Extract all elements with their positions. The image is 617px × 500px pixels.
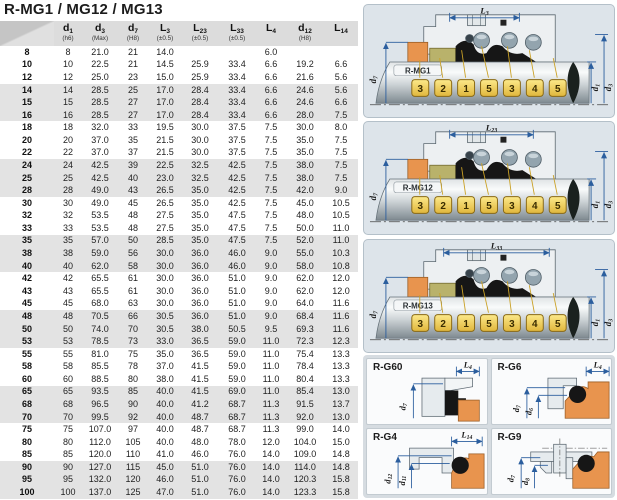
table-row: 303049.04526.535.042.57.545.010.5: [0, 197, 358, 210]
table-cell: 32: [54, 210, 82, 223]
callout-boxes: 3 2 1 5 3 4 5: [412, 197, 566, 214]
table-cell: 60: [54, 373, 82, 386]
table-row: 101022.52114.525.933.46.619.26.6: [0, 59, 358, 72]
table-cell: 30.0: [148, 247, 182, 260]
svg-text:3: 3: [509, 201, 515, 212]
table-cell: 26.5: [148, 184, 182, 197]
table-cell: 75: [54, 423, 82, 436]
table-cell: 38.0: [286, 159, 324, 172]
table-cell: 7.5: [256, 134, 286, 147]
row-label: 20: [0, 134, 54, 147]
table-cell: 48.0: [182, 436, 218, 449]
row-label: 10: [0, 59, 54, 72]
table-cell: 105: [118, 436, 148, 449]
table-cell: 73: [118, 335, 148, 348]
row-label: 80: [0, 436, 54, 449]
table-cell: 12.0: [324, 272, 358, 285]
table-cell: 6.6: [324, 59, 358, 72]
top-dim-label: L3: [479, 5, 489, 16]
table-cell: 48.0: [286, 210, 324, 223]
table-cell: 15.0: [324, 436, 358, 449]
row-label: 43: [0, 285, 54, 298]
table-cell: 70: [118, 323, 148, 336]
table-cell: 35.0: [182, 184, 218, 197]
table-cell: 43: [54, 285, 82, 298]
table-cell: 12.0: [324, 285, 358, 298]
table-cell: 14.0: [256, 474, 286, 487]
seat-label: R-G6: [498, 362, 522, 373]
table-cell: 19.2: [286, 59, 324, 72]
table-cell: 59.0: [218, 360, 256, 373]
seat-label: R-G9: [498, 432, 522, 443]
table-row: 424265.56130.036.051.09.062.012.0: [0, 272, 358, 285]
table-cell: 6.0: [256, 46, 286, 59]
table-cell: 14.8: [324, 449, 358, 462]
table-cell: 48.7: [182, 411, 218, 424]
row-label: 58: [0, 360, 54, 373]
table-cell: 8: [54, 46, 82, 59]
table-cell: 41.5: [182, 386, 218, 399]
column-header: L23(±0.5): [182, 21, 218, 46]
table-cell: 30.5: [148, 323, 182, 336]
corner-cell: [0, 21, 54, 46]
table-cell: 41.2: [182, 398, 218, 411]
table-cell: 96.5: [82, 398, 118, 411]
table-cell: 9.0: [324, 184, 358, 197]
table-cell: 51.0: [182, 474, 218, 487]
table-cell: 40.0: [148, 386, 182, 399]
dim-label-d6: d6: [523, 408, 534, 415]
table-cell: 11.0: [256, 360, 286, 373]
table-cell: 48: [118, 222, 148, 235]
table-cell: 25.9: [182, 59, 218, 72]
table-cell: 28.5: [82, 96, 118, 109]
table-cell: 9.0: [256, 285, 286, 298]
table-cell: 7.5: [324, 147, 358, 160]
table-cell: 7.5: [256, 235, 286, 248]
table-cell: 7.5: [324, 109, 358, 122]
table-cell: 35: [54, 235, 82, 248]
table-row: 202037.03521.530.037.57.535.07.5: [0, 134, 358, 147]
row-label: 53: [0, 335, 54, 348]
table-cell: 91.5: [286, 398, 324, 411]
table-cell: 11.6: [324, 310, 358, 323]
table-cell: 24.6: [286, 84, 324, 97]
table-cell: 75.4: [286, 348, 324, 361]
table-cell: 76.0: [218, 486, 256, 499]
row-label: 35: [0, 235, 54, 248]
seal-diagram-r-mg13: R-MG13 3 2 1 5 3 4 5: [363, 239, 615, 353]
svg-text:3: 3: [418, 201, 424, 212]
table-cell: 33.4: [218, 109, 256, 122]
table-cell: [324, 46, 358, 59]
diagram-name: R-MG1: [405, 66, 431, 75]
svg-text:3: 3: [509, 319, 515, 330]
diagram-name: R-MG13: [403, 301, 434, 310]
table-cell: 69.0: [218, 386, 256, 399]
table-cell: 10.3: [324, 247, 358, 260]
dim-label-d7: d7: [505, 474, 516, 482]
table-cell: 99.0: [286, 423, 324, 436]
table-cell: 42: [54, 272, 82, 285]
table-cell: 48: [118, 210, 148, 223]
svg-text:2: 2: [440, 201, 446, 212]
dimensions-table: d1(h6)d3(Max)d7(H8)L3(±0.5)L23(±0.5)L33(…: [0, 21, 358, 499]
table-cell: 49.0: [82, 184, 118, 197]
row-label: 38: [0, 247, 54, 260]
table-cell: 14.0: [148, 46, 182, 59]
table-cell: 36.0: [182, 272, 218, 285]
dim-label-l14: L14: [460, 430, 472, 441]
table-cell: 28.5: [82, 109, 118, 122]
table-cell: 61: [118, 285, 148, 298]
row-label: 8: [0, 46, 54, 59]
table-cell: 100: [54, 486, 82, 499]
table-cell: 47.5: [218, 210, 256, 223]
row-label: 24: [0, 159, 54, 172]
svg-text:2: 2: [440, 84, 446, 95]
table-cell: 93.5: [82, 386, 118, 399]
column-header: d12(H8): [286, 21, 324, 46]
table-cell: 78.0: [218, 436, 256, 449]
svg-text:d3: d3: [603, 201, 614, 208]
row-label: 40: [0, 260, 54, 273]
table-cell: 41.5: [182, 373, 218, 386]
table-cell: 78.4: [286, 360, 324, 373]
table-cell: 68.0: [82, 298, 118, 311]
table-cell: 40: [118, 172, 148, 185]
table-cell: 6.6: [256, 84, 286, 97]
table-cell: 45: [118, 197, 148, 210]
table-cell: 25: [54, 172, 82, 185]
table-cell: 125: [118, 486, 148, 499]
table-cell: 27.5: [148, 210, 182, 223]
row-label: 68: [0, 398, 54, 411]
table-cell: 39: [118, 159, 148, 172]
row-label: 75: [0, 423, 54, 436]
seal-face: [430, 48, 456, 62]
table-cell: 21.6: [286, 71, 324, 84]
table-cell: 62.0: [82, 260, 118, 273]
table-row: 454568.06330.036.051.09.064.011.6: [0, 298, 358, 311]
table-cell: 14.0: [256, 449, 286, 462]
seat-diagram-r-g60: R-G60 L4 d7: [366, 358, 488, 425]
table-cell: 37.0: [82, 147, 118, 160]
table-cell: 51.0: [218, 310, 256, 323]
table-row: 151528.52717.028.433.46.624.66.6: [0, 96, 358, 109]
table-cell: 28.4: [182, 96, 218, 109]
table-row: 535378.57333.036.559.011.072.312.3: [0, 335, 358, 348]
diagram-name: R-MG12: [403, 183, 434, 192]
table-cell: 80.4: [286, 373, 324, 386]
callout-boxes: 3 2 1 5 3 4 5: [412, 80, 566, 97]
table-row: 100100137.012547.051.076.014.0123.315.8: [0, 486, 358, 499]
table-cell: 13.0: [324, 386, 358, 399]
table-cell: 64.0: [286, 298, 324, 311]
table-cell: 114.0: [286, 461, 324, 474]
table-cell: 13.3: [324, 373, 358, 386]
table-cell: 109.0: [286, 449, 324, 462]
table-cell: 13.0: [324, 411, 358, 424]
table-cell: 46.0: [182, 449, 218, 462]
table-cell: 51.0: [182, 461, 218, 474]
table-row: 8080112.010540.048.078.012.0104.015.0: [0, 436, 358, 449]
dim-label-l4: L4: [463, 360, 472, 371]
table-cell: 38: [54, 247, 82, 260]
table-cell: 11.0: [256, 348, 286, 361]
table-cell: 65: [54, 386, 82, 399]
svg-text:d7: d7: [368, 310, 380, 318]
svg-text:3: 3: [418, 319, 424, 330]
table-cell: 42.5: [82, 159, 118, 172]
table-cell: 53.5: [82, 210, 118, 223]
row-label: 18: [0, 121, 54, 134]
table-cell: 35.0: [182, 222, 218, 235]
table-cell: 40.0: [148, 436, 182, 449]
table-row: 707099.59240.048.768.711.392.013.0: [0, 411, 358, 424]
row-label: 60: [0, 373, 54, 386]
table-cell: 45: [54, 298, 82, 311]
svg-text:d1: d1: [590, 201, 602, 208]
table-row: 323253.54827.535.047.57.548.010.5: [0, 210, 358, 223]
seat-label: R-G60: [373, 362, 402, 373]
table-cell: 80: [54, 436, 82, 449]
table-cell: 6.6: [256, 109, 286, 122]
top-dim-label: L33: [490, 240, 502, 251]
table-cell: 36.5: [182, 335, 218, 348]
row-label: 42: [0, 272, 54, 285]
table-cell: 42.5: [218, 159, 256, 172]
table-cell: 33.4: [218, 84, 256, 97]
table-cell: 85: [54, 449, 82, 462]
table-row: 121225.02315.025.933.46.621.65.6: [0, 71, 358, 84]
row-label: 30: [0, 197, 54, 210]
table-cell: 11.0: [256, 335, 286, 348]
table-cell: 36.0: [182, 298, 218, 311]
table-cell: 27: [118, 96, 148, 109]
table-cell: 11.0: [324, 222, 358, 235]
svg-text:5: 5: [486, 84, 492, 95]
row-label: 85: [0, 449, 54, 462]
table-cell: 76.0: [218, 461, 256, 474]
table-cell: 7.5: [324, 172, 358, 185]
row-label: 48: [0, 310, 54, 323]
table-cell: 23: [118, 71, 148, 84]
table-cell: 123.3: [286, 486, 324, 499]
table-cell: 6.6: [256, 59, 286, 72]
table-cell: 30.0: [148, 298, 182, 311]
table-row: 353557.05028.535.047.57.552.011.0: [0, 235, 358, 248]
table-cell: 9.0: [256, 272, 286, 285]
table-cell: 80: [118, 373, 148, 386]
table-cell: 33.0: [148, 335, 182, 348]
table-cell: 28.4: [182, 84, 218, 97]
table-cell: 59.0: [82, 247, 118, 260]
table-cell: 42.5: [82, 172, 118, 185]
table-cell: 12.0: [256, 436, 286, 449]
row-label: 32: [0, 210, 54, 223]
right-dimensions: d1 d3: [587, 269, 614, 338]
column-header: L4: [256, 21, 286, 46]
table-cell: 12.3: [324, 335, 358, 348]
table-cell: 78.5: [82, 335, 118, 348]
table-cell: [286, 46, 324, 59]
table-cell: 20: [54, 134, 82, 147]
table-cell: 35: [118, 134, 148, 147]
table-cell: 46.0: [218, 247, 256, 260]
table-cell: 40.0: [148, 411, 182, 424]
table-cell: 22.5: [82, 59, 118, 72]
table-cell: 76.0: [218, 474, 256, 487]
svg-text:d1: d1: [590, 84, 602, 91]
table-cell: 28.4: [182, 109, 218, 122]
diagram-column: R-MG1 3 2 1 5 3 4 5: [362, 0, 617, 500]
table-cell: 30: [54, 197, 82, 210]
table-cell: 58.0: [286, 260, 324, 273]
table-cell: 45.0: [148, 461, 182, 474]
table-cell: 33.4: [218, 59, 256, 72]
table-cell: 14.0: [324, 423, 358, 436]
right-dimensions: d1 d3: [587, 34, 614, 103]
seat-diagram-r-g9: R-G9 d7 d8: [491, 428, 613, 495]
table-cell: 41.5: [182, 360, 218, 373]
table-cell: 74.0: [82, 323, 118, 336]
set-screw: [500, 137, 506, 143]
table-cell: 37.5: [218, 134, 256, 147]
table-cell: 95: [54, 474, 82, 487]
svg-text:3: 3: [418, 84, 424, 95]
table-cell: 92.0: [286, 411, 324, 424]
row-label: 95: [0, 474, 54, 487]
set-screw: [500, 20, 506, 26]
table-cell: 52.0: [286, 235, 324, 248]
svg-text:2: 2: [440, 319, 446, 330]
table-cell: 28.5: [82, 84, 118, 97]
row-label: 22: [0, 147, 54, 160]
table-cell: 13.7: [324, 398, 358, 411]
table-row: 8585120.011041.046.076.014.0109.014.8: [0, 449, 358, 462]
table-cell: 68.7: [218, 423, 256, 436]
table-row: 282849.04326.535.042.57.542.09.0: [0, 184, 358, 197]
table-cell: 127.0: [82, 461, 118, 474]
table-cell: 120.0: [82, 449, 118, 462]
table-cell: 45.0: [286, 197, 324, 210]
table-cell: 30.0: [286, 121, 324, 134]
table-cell: 43: [118, 184, 148, 197]
table-cell: 7.5: [324, 134, 358, 147]
table-cell: 7.5: [256, 172, 286, 185]
table-cell: 35.0: [286, 134, 324, 147]
table-cell: 7.5: [256, 121, 286, 134]
table-cell: 17.0: [148, 109, 182, 122]
table-row: 555581.07535.036.559.011.075.413.3: [0, 348, 358, 361]
table-cell: 19.5: [148, 121, 182, 134]
table-row: 7575107.09740.048.768.711.399.014.0: [0, 423, 358, 436]
seal-face: [430, 165, 456, 179]
seal-drawing-svg: R-MG12 3 2 1 5 3 4 5: [364, 122, 614, 234]
table-cell: 57.0: [82, 235, 118, 248]
row-label: 14: [0, 84, 54, 97]
table-row: 434365.56130.036.051.09.062.012.0: [0, 285, 358, 298]
table-cell: 7.5: [324, 159, 358, 172]
callout-boxes: 3 2 1 5 3 4 5: [412, 315, 566, 332]
dim-label-d12: d12: [382, 474, 393, 484]
seat-ring: [408, 159, 428, 179]
dim-label-l4: L4: [592, 360, 601, 371]
table-cell: 40.0: [148, 423, 182, 436]
table-cell: 14.5: [148, 59, 182, 72]
top-dim-label: L23: [485, 122, 497, 133]
table-cell: 11.3: [256, 398, 286, 411]
table-cell: 37.0: [148, 360, 182, 373]
seal-diagram-r-mg12: R-MG12 3 2 1 5 3 4 5: [363, 121, 615, 235]
table-cell: 10.5: [324, 197, 358, 210]
table-cell: 68.4: [286, 310, 324, 323]
table-row: 484870.56630.536.051.09.068.411.6: [0, 310, 358, 323]
table-cell: 70.5: [82, 310, 118, 323]
table-cell: 14.8: [324, 461, 358, 474]
table-cell: 25.9: [182, 71, 218, 84]
table-cell: 36.0: [182, 310, 218, 323]
table-cell: 115: [118, 461, 148, 474]
table-cell: 112.0: [82, 436, 118, 449]
table-cell: 9.0: [256, 247, 286, 260]
table-cell: 50: [54, 323, 82, 336]
table-cell: 10.8: [324, 260, 358, 273]
table-row: 141428.52517.028.433.46.624.65.6: [0, 84, 358, 97]
table-cell: 8.0: [324, 121, 358, 134]
table-cell: [218, 46, 256, 59]
table-cell: 50: [118, 235, 148, 248]
table-cell: 38.0: [286, 172, 324, 185]
table-cell: 99.5: [82, 411, 118, 424]
table-cell: 7.5: [256, 159, 286, 172]
table-cell: 35.0: [148, 348, 182, 361]
svg-text:5: 5: [486, 319, 492, 330]
table-cell: 70: [54, 411, 82, 424]
column-header: L3(±0.5): [148, 21, 182, 46]
table-cell: 14.0: [256, 461, 286, 474]
row-label: 25: [0, 172, 54, 185]
table-cell: 21: [118, 59, 148, 72]
table-cell: 63: [118, 298, 148, 311]
table-cell: 18: [54, 121, 82, 134]
table-cell: 30.0: [182, 121, 218, 134]
table-cell: 56: [118, 247, 148, 260]
table-cell: 22: [54, 147, 82, 160]
table-cell: 40.0: [148, 398, 182, 411]
table-cell: 69.3: [286, 323, 324, 336]
table-cell: 33.4: [218, 96, 256, 109]
svg-text:3: 3: [509, 84, 515, 95]
svg-text:5: 5: [555, 319, 561, 330]
table-cell: 42.5: [218, 172, 256, 185]
table-cell: 55.0: [286, 247, 324, 260]
table-cell: 40: [54, 260, 82, 273]
row-label: 16: [0, 109, 54, 122]
svg-text:4: 4: [532, 201, 538, 212]
table-row: 585885.57837.041.559.011.078.413.3: [0, 360, 358, 373]
table-cell: 55: [54, 348, 82, 361]
svg-text:d3: d3: [603, 84, 614, 91]
table-row: 505074.07030.538.050.59.569.311.6: [0, 323, 358, 336]
table-cell: 9.0: [256, 310, 286, 323]
table-row: 9090127.011545.051.076.014.0114.014.8: [0, 461, 358, 474]
svg-text:d3: d3: [603, 319, 614, 326]
table-cell: 30.5: [148, 310, 182, 323]
row-label: 55: [0, 348, 54, 361]
table-cell: 21: [118, 46, 148, 59]
